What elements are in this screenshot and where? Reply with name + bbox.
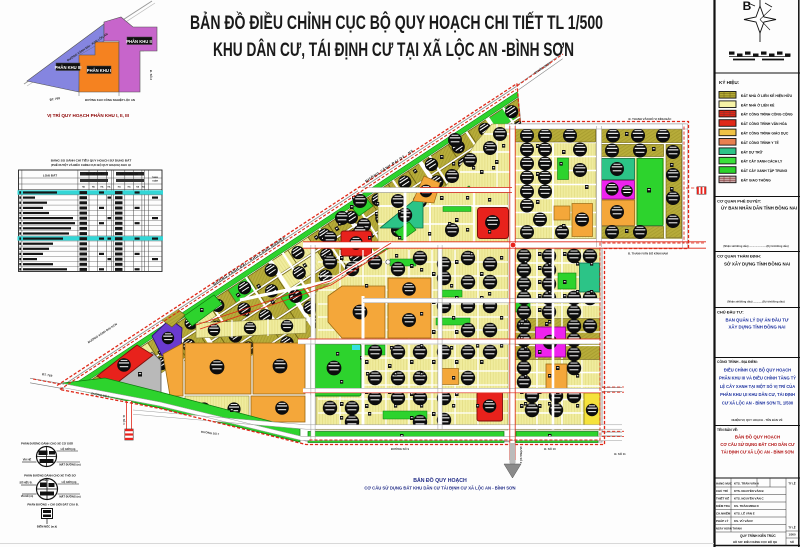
svg-text:CƯ XÃ LỘC AN - BÌNH SƠN TL 1/5: CƯ XÃ LỘC AN - BÌNH SƠN TL 1/500 bbox=[722, 400, 794, 405]
svg-text:TĂNG: TĂNG bbox=[152, 176, 158, 179]
svg-text:(Nhận xét/đóng dấu) ..........: (Nhận xét/đóng dấu) .............(Ký tên… bbox=[727, 300, 784, 304]
svg-text:KTS. LÊ VĂN E: KTS. LÊ VĂN E bbox=[734, 511, 755, 516]
svg-text:KÝ HIỆU:: KÝ HIỆU: bbox=[719, 78, 740, 85]
svg-text:QĐ PHÊ DUYỆT: QĐ PHÊ DUYỆT bbox=[86, 173, 104, 176]
svg-text:PHẦN ĐƯỜNG DÀNH CHO XE THÔ SƠ: PHẦN ĐƯỜNG DÀNH CHO XE THÔ SƠ bbox=[24, 473, 76, 478]
svg-text:ĐẤT CÂY XANH CÁCH LY: ĐẤT CÂY XANH CÁCH LY bbox=[741, 159, 783, 164]
svg-text:QUY TRÌNH KIẾN TRÚC: QUY TRÌNH KIẾN TRÚC bbox=[740, 533, 776, 538]
svg-text:Đ. SỐ 2: Đ. SỐ 2 bbox=[149, 70, 154, 80]
svg-text:ĐẤT GIAO THÔNG: ĐẤT GIAO THÔNG bbox=[741, 178, 771, 183]
svg-text:KS. TRẦN MINH D: KS. TRẦN MINH D bbox=[734, 504, 759, 508]
svg-text:PHẦN ĐƯỜNG + CHỈ GIỚI ĐẤT CỦA: PHẦN ĐƯỜNG + CHỈ GIỚI ĐẤT CỦA Đ. bbox=[27, 502, 79, 507]
svg-text:CƠ QUAN PHÊ DUYỆT:: CƠ QUAN PHÊ DUYỆT: bbox=[717, 199, 761, 204]
svg-text:PHÂN KHU I,II KHU DÂN CƯ, TÁI: PHÂN KHU I,II KHU DÂN CƯ, TÁI ĐỊNH bbox=[720, 392, 795, 397]
svg-text:ĐƯỜNG SỐ 9: ĐƯỜNG SỐ 9 bbox=[391, 446, 410, 451]
svg-text:PHÂN KHU I: PHÂN KHU I bbox=[87, 68, 111, 73]
svg-text:TÁI ĐỊNH CƯ XÃ LỘC AN - BÌNH S: TÁI ĐỊNH CƯ XÃ LỘC AN - BÌNH SƠN bbox=[721, 450, 794, 455]
svg-text:ĐẤT CÂY XANH TẬP TRUNG: ĐẤT CÂY XANH TẬP TRUNG bbox=[741, 168, 788, 173]
svg-text:KTS. NGUYỄN VĂN B: KTS. NGUYỄN VĂN B bbox=[734, 488, 764, 493]
svg-text:ĐƯỜNG KHU CÔNG NGHIỆP LỘC AN: ĐƯỜNG KHU CÔNG NGHIỆP LỘC AN bbox=[85, 97, 135, 102]
svg-text:Đ. THANH VÂN ĐỖ VỊ KÍNH BẮC: Đ. THANH VÂN ĐỖ VỊ KÍNH BẮC bbox=[629, 116, 672, 121]
svg-text:ĐẤT NHÀ Ở LIÊN KẾ HIỆN HỮU: ĐẤT NHÀ Ở LIÊN KẾ HIỆN HỮU bbox=[741, 93, 793, 98]
svg-text:SỐ HIỆU: SỐ HIỆU bbox=[40, 479, 49, 482]
svg-text:BẢNG SO SÁNH CHỈ TIÊU QUY HOẠC: BẢNG SO SÁNH CHỈ TIÊU QUY HOẠCH SỬ DỤNG … bbox=[51, 158, 132, 163]
svg-text:(Nhận xét/đóng dấu) ..........: (Nhận xét/đóng dấu) ....................… bbox=[723, 244, 788, 248]
svg-text:TÊN BẢN VẼ:: TÊN BẢN VẼ: bbox=[717, 427, 738, 432]
svg-text:BẢN ĐỒ ĐIỀU CHỈNH CỤC BỘ QUY H: BẢN ĐỒ ĐIỀU CHỈNH CỤC BỘ QUY HOẠCH CHI T… bbox=[190, 12, 603, 34]
svg-text:Đ. SỐ 11: Đ. SỐ 11 bbox=[614, 451, 626, 456]
svg-text:BẢN ĐỒ QUY HOẠCH: BẢN ĐỒ QUY HOẠCH bbox=[735, 435, 780, 440]
svg-text:XÂY DỰNG TỈNH ĐỒNG NAI: XÂY DỰNG TỈNH ĐỒNG NAI bbox=[729, 325, 786, 330]
svg-text:CHỦ ĐẦU TƯ:: CHỦ ĐẦU TƯ: bbox=[717, 310, 744, 315]
svg-text:CƠ CẤU SỬ DỤNG ĐẤT KHU DÂN CƯ: CƠ CẤU SỬ DỤNG ĐẤT KHU DÂN CƯ TÁI ĐỊNH C… bbox=[364, 486, 515, 491]
svg-text:SỐ HIỆU Đ.: SỐ HIỆU Đ. bbox=[20, 482, 33, 485]
svg-text:CHỦ TRÌ: CHỦ TRÌ bbox=[716, 488, 728, 493]
svg-text:BẢN ĐỒ QUY HOẠCH: BẢN ĐỒ QUY HOẠCH bbox=[413, 477, 467, 484]
svg-text:ĐIỀU CHỈNH QH: ĐIỀU CHỈNH QH bbox=[120, 173, 138, 176]
svg-text:LOẠI ĐẤT: LOẠI ĐẤT bbox=[43, 173, 57, 178]
svg-text:CƠ QUAN THẨM ĐỊNH:: CƠ QUAN THẨM ĐỊNH: bbox=[717, 254, 761, 259]
svg-text:KIỂM TRA: KIỂM TRA bbox=[716, 503, 731, 508]
svg-text:HẠNG MỤC: HẠNG MỤC bbox=[716, 482, 733, 486]
svg-text:THIẾT KẾ: THIẾT KẾ bbox=[716, 496, 729, 501]
svg-text:KTS. TRẦN VĂN A: KTS. TRẦN VĂN A bbox=[734, 481, 760, 486]
svg-text:LỆ CÂY XANH TẠI MỘT SỐ VỊ TRÍ: LỆ CÂY XANH TẠI MỘT SỐ VỊ TRÍ CỦA bbox=[720, 384, 795, 389]
svg-text:(PHÊ DUYỆT VÀ ĐIỀU CHỈNH CỤC B: (PHÊ DUYỆT VÀ ĐIỀU CHỈNH CỤC BỘ QUY HOẠC… bbox=[51, 162, 131, 167]
svg-text:ĐẤT CÔNG TRÌNH CÔNG CỘNG: ĐẤT CÔNG TRÌNH CÔNG CỘNG bbox=[741, 112, 793, 117]
svg-text:B: B bbox=[743, 0, 752, 13]
svg-text:GIẢM: GIẢM bbox=[152, 180, 158, 183]
svg-text:1/500: 1/500 bbox=[789, 533, 796, 537]
svg-text:CH.NHIỆM: CH.NHIỆM bbox=[716, 511, 731, 516]
svg-text:ĐẤT DỰ TRỮ: ĐẤT DỰ TRỮ bbox=[741, 149, 763, 154]
svg-text:PHÂN KHU III: PHÂN KHU III bbox=[55, 65, 82, 70]
svg-text:ĐẤT CÔNG TRÌNH GIÁO DỤC: ĐẤT CÔNG TRÌNH GIÁO DỤC bbox=[741, 131, 789, 136]
svg-text:PHÂN KHU II: PHÂN KHU II bbox=[126, 39, 152, 44]
svg-text:CƠ CẤU SỬ DỤNG ĐẤT CHO DÂN CƯ: CƠ CẤU SỬ DỤNG ĐẤT CHO DÂN CƯ bbox=[720, 442, 795, 447]
svg-text:VỊ TRÍ QUY HOẠCH PHÂN KHU I, I: VỊ TRÍ QUY HOẠCH PHÂN KHU I, II, III bbox=[47, 111, 129, 118]
svg-text:KTS. NGUYỄN VĂN C: KTS. NGUYỄN VĂN C bbox=[734, 496, 764, 501]
svg-text:PHẦN ĐƯỜNG DÀNH CHO XE CƠ GIỚI: PHẦN ĐƯỜNG DÀNH CHO XE CƠ GIỚI bbox=[21, 441, 73, 446]
svg-text:ỦY BAN NHÂN DÂN TỈNH ĐỒNG NAI: ỦY BAN NHÂN DÂN TỈNH ĐỒNG NAI bbox=[721, 206, 797, 211]
svg-text:HỒ SƠ: ĐIỀU CHỈNH CỤC BỘ QH: HỒ SƠ: ĐIỀU CHỈNH CỤC BỘ QH bbox=[733, 539, 777, 544]
svg-text:PHÂN KHU III VÀ ĐIỀU CHỈNH TĂN: PHÂN KHU III VÀ ĐIỀU CHỈNH TĂNG TỶ bbox=[719, 376, 796, 381]
svg-text:CÔNG TRÌNH - ĐỊA ĐIỂM:: CÔNG TRÌNH - ĐỊA ĐIỂM: bbox=[717, 359, 758, 364]
svg-text:KS. VŨ VĂN F: KS. VŨ VĂN F bbox=[734, 518, 753, 523]
svg-text:VỈA HÈ (m): VỈA HÈ (m) bbox=[21, 495, 33, 498]
svg-text:Đ. SỐ 10: Đ. SỐ 10 bbox=[544, 446, 556, 451]
svg-text:BAN QUẢN LÝ DỰ ÁN ĐẦU TƯ: BAN QUẢN LÝ DỰ ÁN ĐẦU TƯ bbox=[726, 318, 789, 323]
svg-text:Đ. THANH VÂN ĐỖ KÍNH NAM: Đ. THANH VÂN ĐỖ KÍNH NAM bbox=[628, 251, 668, 256]
svg-text:SỞ XÂY DỰNG TỈNH ĐỒNG NAI: SỞ XÂY DỰNG TỈNH ĐỒNG NAI bbox=[724, 262, 790, 267]
svg-text:PHÁP LÝ: PHÁP LÝ bbox=[716, 518, 729, 523]
svg-text:NHIỆM VỤ QUY HOẠCH - TÊN BẢN V: NHIỆM VỤ QUY HOẠCH - TÊN BẢN VẼ bbox=[732, 417, 783, 422]
svg-text:ĐẤT CÔNG TRÌNH Y TẾ: ĐẤT CÔNG TRÌNH Y TẾ bbox=[741, 140, 779, 145]
svg-text:ĐẤT NHÀ Ở LIÊN KẾ: ĐẤT NHÀ Ở LIÊN KẾ bbox=[741, 102, 775, 107]
svg-text:ĐIỀU CHỈNH CỤC BỘ QUY HOẠCH: ĐIỀU CHỈNH CỤC BỘ QUY HOẠCH bbox=[724, 368, 791, 373]
svg-text:ĐẤT CÔNG TRÌNH VĂN HÓA: ĐẤT CÔNG TRÌNH VĂN HÓA bbox=[741, 121, 788, 126]
svg-text:KHU DÂN CƯ, TÁI ĐỊNH CƯ TẠI XÃ: KHU DÂN CƯ, TÁI ĐỊNH CƯ TẠI XÃ LỘC AN -B… bbox=[213, 39, 574, 61]
